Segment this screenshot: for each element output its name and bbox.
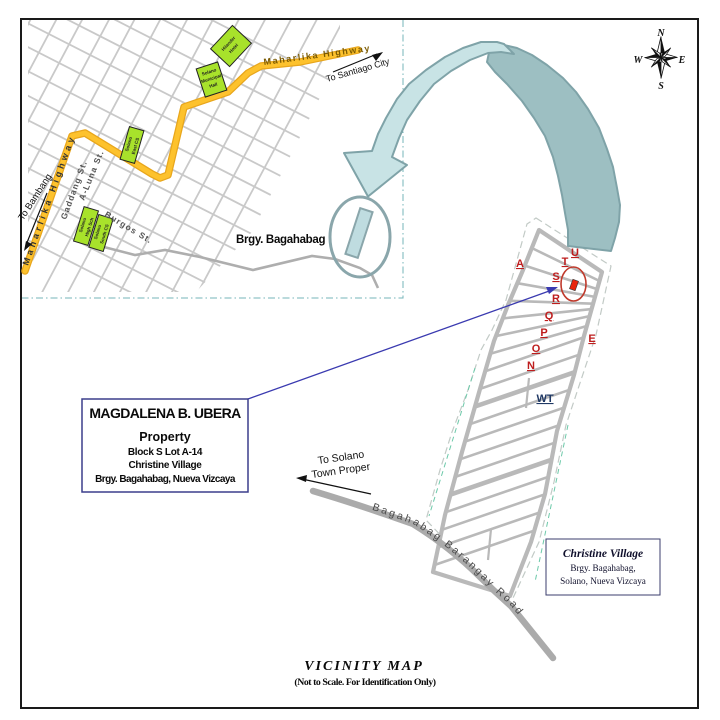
svg-text:T: T xyxy=(562,256,569,268)
svg-text:(Not to Scale. For Identificat: (Not to Scale. For Identification Only) xyxy=(294,677,435,688)
svg-text:Solano, Nueva Vizcaya: Solano, Nueva Vizcaya xyxy=(560,576,646,586)
svg-text:MAGDALENA B. UBERA: MAGDALENA B. UBERA xyxy=(89,405,241,421)
svg-text:Christine Village: Christine Village xyxy=(563,548,643,560)
svg-text:Q: Q xyxy=(545,310,554,322)
svg-text:Christine Village: Christine Village xyxy=(128,460,202,471)
svg-text:E: E xyxy=(588,333,595,345)
svg-text:N: N xyxy=(527,360,535,372)
svg-text:Property: Property xyxy=(139,430,190,444)
svg-text:Brgy. Bagahabag: Brgy. Bagahabag xyxy=(236,234,325,246)
svg-text:O: O xyxy=(532,343,541,355)
svg-text:W: W xyxy=(634,55,644,66)
svg-text:E: E xyxy=(678,55,686,66)
svg-text:VICINITY MAP: VICINITY MAP xyxy=(304,659,424,674)
svg-text:U: U xyxy=(571,247,579,259)
svg-text:A: A xyxy=(516,258,524,270)
svg-text:WT: WT xyxy=(536,393,553,405)
svg-text:Block S Lot A-14: Block S Lot A-14 xyxy=(128,447,203,458)
svg-text:Brgy. Bagahabag, Nueva Vizcaya: Brgy. Bagahabag, Nueva Vizcaya xyxy=(95,474,236,485)
svg-text:S: S xyxy=(552,271,559,283)
svg-text:N: N xyxy=(656,28,665,39)
svg-text:P: P xyxy=(540,327,547,339)
svg-text:Brgy. Bagahabag,: Brgy. Bagahabag, xyxy=(570,563,635,573)
svg-text:R: R xyxy=(552,293,560,305)
svg-text:S: S xyxy=(658,81,664,92)
